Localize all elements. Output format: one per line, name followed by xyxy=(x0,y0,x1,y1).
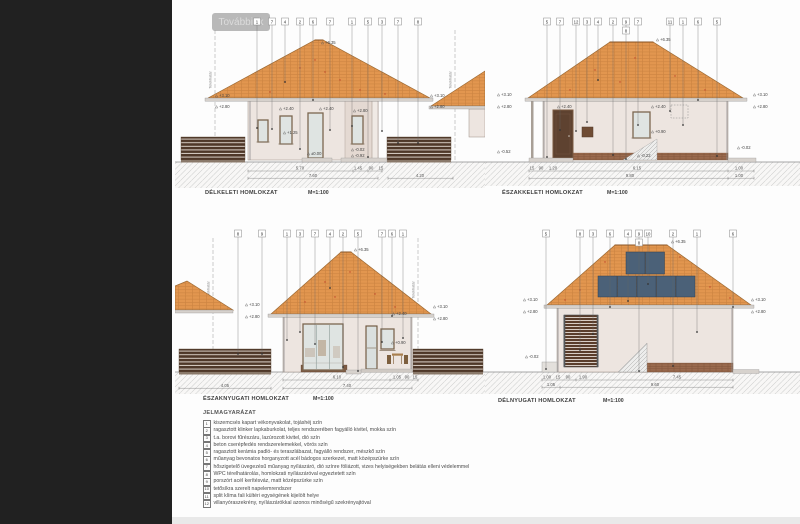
level-symbol xyxy=(497,106,500,108)
level-value: +1.25 xyxy=(287,130,298,135)
legend: JELMAGYARÁZAT 1kiszemcsés kapart vékonyv… xyxy=(203,410,543,508)
legend-item-text: porszórt acél kerítésváz, matt középszür… xyxy=(214,478,323,484)
drawing-scale: M=1:100 xyxy=(308,190,329,196)
dimension-value: 15 xyxy=(413,375,418,380)
level-value: +2.40 xyxy=(655,104,666,109)
level-symbol xyxy=(656,39,659,41)
level-value: +3.10 xyxy=(219,93,230,98)
legend-item: 3t.a. borovi fűrészáru, lazúrozott kivit… xyxy=(203,435,543,442)
ground xyxy=(485,372,800,394)
level-value: -0.02 xyxy=(741,145,751,150)
level-value: -0.02 xyxy=(355,147,365,152)
legend-item-text: műanyag bevonatos horganyzott acél bádog… xyxy=(214,456,400,462)
porch-column xyxy=(372,101,378,160)
level-symbol xyxy=(433,318,436,320)
fence-right xyxy=(413,349,483,375)
fence-left xyxy=(179,349,271,375)
level-value: +2.80 xyxy=(357,108,368,113)
meter-cabinet xyxy=(582,127,593,137)
level-symbol xyxy=(753,94,756,96)
roof xyxy=(268,252,434,317)
dimension-value: 1.05 xyxy=(393,375,402,380)
roof xyxy=(525,42,747,101)
level-value: +2.80 xyxy=(219,104,230,109)
legend-item: 1kiszemcsés kapart vékonyvakolat, tojásh… xyxy=(203,420,543,427)
fence-left xyxy=(181,137,245,163)
level-value: -0.22 xyxy=(641,153,651,158)
sidebar-panel xyxy=(0,0,172,524)
legend-item-text: t.a. borovi fűrészáru, lazúrozott kivite… xyxy=(214,435,320,441)
level-symbol xyxy=(245,316,248,318)
legend-item: 7hőszigetelő üvegezésű műanyag nyílászár… xyxy=(203,464,543,471)
legend-item: 2ragasztott klinker lapkaburkolat, telje… xyxy=(203,427,543,434)
dimension-value: 90 xyxy=(539,166,544,171)
dimension-value: 15 xyxy=(556,375,561,380)
neighbor-roof xyxy=(175,281,233,313)
terrace-door xyxy=(366,326,377,369)
dimension-value: 9.60 xyxy=(651,382,660,387)
walkway-slab xyxy=(733,370,759,374)
level-value: +6.35 xyxy=(358,247,369,252)
level-value: -0.02 xyxy=(529,354,539,359)
drawing-title: DÉLKELETI HOMLOKZAT xyxy=(205,188,278,196)
level-value: +2.80 xyxy=(434,104,445,109)
terrace-floor xyxy=(361,369,412,373)
dimension-value: 7.45 xyxy=(673,375,682,380)
legend-item-text: hőszigetelő üvegezésű műanyag nyílászáró… xyxy=(214,464,470,470)
level-value: +2.80 xyxy=(757,104,768,109)
level-value: +6.35 xyxy=(675,239,686,244)
level-value: +2.80 xyxy=(501,104,512,109)
level-symbol xyxy=(753,106,756,108)
terrace-slab xyxy=(529,158,573,162)
level-value: +2.40 xyxy=(283,106,294,111)
level-symbol xyxy=(525,356,528,358)
level-value: ±0.00 xyxy=(311,151,322,156)
dimension-value: 4.05 xyxy=(221,383,230,388)
svg-text:Telekhatár: Telekhatár xyxy=(209,71,213,89)
level-value: +2.40 xyxy=(396,311,407,316)
callout-number: 10 xyxy=(646,231,651,236)
level-value: +3.10 xyxy=(757,92,768,97)
dimension-value: 90 xyxy=(566,375,571,380)
dimension-value: 5.70 xyxy=(296,166,305,171)
level-symbol xyxy=(497,151,500,153)
level-symbol xyxy=(751,311,754,313)
dimension-value: 4.20 xyxy=(416,173,425,178)
legend-item-text: kiszemcsés kapart vékonyvakolat, tojáshé… xyxy=(214,420,323,426)
dimension-value: 15 xyxy=(530,166,535,171)
concrete-base xyxy=(542,362,557,372)
dimension-value: 9.80 xyxy=(626,173,635,178)
drawing-scale: M=1:100 xyxy=(607,190,628,196)
drawing-sheet: Továbbiak Telekhatár Telekhatár xyxy=(172,0,800,517)
level-value: +3.10 xyxy=(249,302,260,307)
dimension-value: 90 xyxy=(369,166,374,171)
level-symbol xyxy=(737,147,740,149)
level-value: +3.10 xyxy=(501,92,512,97)
level-value: +6.35 xyxy=(325,40,336,45)
legend-item-text: beton cserépfedés rendszerelemekkel, vör… xyxy=(214,442,328,448)
porch-post xyxy=(531,101,534,158)
sliding-glass-door xyxy=(303,324,343,370)
level-value: +2.80 xyxy=(527,309,538,314)
elevation-northeast: 15901.206.151.009.801.00 +6.35+3.10+2.80… xyxy=(485,10,800,210)
legend-items: 1kiszemcsés kapart vékonyvakolat, tojásh… xyxy=(203,420,543,508)
legend-item: 12villanyóraszekrény, nyílászárókkal azo… xyxy=(203,500,543,507)
elevation-northwest: Telekhatár Telekhatár xyxy=(175,222,485,412)
dimension-value: 1.00 xyxy=(735,173,744,178)
entry-door xyxy=(553,110,573,158)
dimension-value: 6.10 xyxy=(333,375,342,380)
walkway-slab xyxy=(728,158,756,162)
dimension-value: 1.05 xyxy=(547,382,556,387)
level-value: +6.35 xyxy=(660,37,671,42)
level-value: +2.40 xyxy=(561,104,572,109)
level-symbol xyxy=(245,304,248,306)
window xyxy=(258,120,268,142)
dimension-value: 1.45 xyxy=(354,166,363,171)
level-symbol xyxy=(497,94,500,96)
level-value: +0.90 xyxy=(395,340,406,345)
drawing-title: ÉSZAKKELETI HOMLOKZAT xyxy=(502,188,583,196)
level-symbol xyxy=(523,311,526,313)
level-symbol xyxy=(433,306,436,308)
legend-item: 6műanyag bevonatos horganyzott acél bádo… xyxy=(203,456,543,463)
dimension-value: 7.40 xyxy=(343,383,352,388)
svg-text:Telekhatár: Telekhatár xyxy=(449,71,453,89)
level-symbol xyxy=(354,249,357,251)
svg-text:Telekhatár: Telekhatár xyxy=(412,281,416,299)
dimension-value: 7.60 xyxy=(309,173,318,178)
legend-item: 5ragasztott kerámia padló- és teraszlába… xyxy=(203,449,543,456)
legend-item: 9porszórt acél kerítésváz, matt középszü… xyxy=(203,478,543,485)
dimension-value: 1.90 xyxy=(579,375,588,380)
level-value: +3.10 xyxy=(434,93,445,98)
level-symbol xyxy=(671,241,674,243)
level-value: +3.10 xyxy=(755,297,766,302)
legend-item: 10tetősíkra szerelt napelemrendszer xyxy=(203,486,543,493)
legend-item: 8WPC térelhatárolás, homlokzati nyílászá… xyxy=(203,471,543,478)
level-value: +2.80 xyxy=(437,316,448,321)
elevation-southeast: Telekhatár Telekhatár xyxy=(175,10,485,210)
door-handle xyxy=(568,135,570,137)
dimension-value: 6.15 xyxy=(633,166,642,171)
level-value: -0.92 xyxy=(355,153,365,158)
level-symbol xyxy=(430,95,433,97)
dimension-value: 1.20 xyxy=(549,166,558,171)
legend-item-text: villanyóraszekrény, nyílászárókkal azono… xyxy=(214,500,371,506)
drawing-title: ÉSZAKNYUGATI HOMLOKZAT xyxy=(203,394,289,402)
legend-item-text: WPC térelhatárolás, homlokzati nyílászár… xyxy=(214,471,356,477)
window xyxy=(632,112,652,138)
entry-step xyxy=(302,158,332,162)
level-value: -0.52 xyxy=(501,149,511,154)
dimension-value: 1.00 xyxy=(735,166,744,171)
legend-item-text: tetősíkra szerelt napelemrendszer xyxy=(214,486,292,492)
level-value: +3.10 xyxy=(527,297,538,302)
dimension-value: 15 xyxy=(379,166,384,171)
level-symbol xyxy=(215,106,218,108)
legend-title: JELMAGYARÁZAT xyxy=(203,410,543,416)
wpc-screen xyxy=(564,315,599,367)
legend-item: 4beton cserépfedés rendszerelemekkel, vö… xyxy=(203,442,543,449)
level-symbol xyxy=(751,299,754,301)
drawing-scale: M=1:100 xyxy=(313,396,334,402)
elevation-southwest: 1.0015901.907.451.059.60 +6.35+3.10+2.80… xyxy=(485,222,800,412)
legend-item-text: ragasztott klinker lapkaburkolat, teljes… xyxy=(214,427,397,433)
drawing-scale: M=1:100 xyxy=(603,398,624,404)
legend-item-number: 12 xyxy=(203,500,211,508)
klinker-plinth xyxy=(643,363,733,372)
page-bottom-gap xyxy=(172,517,800,524)
drawing-title: DÉLNYUGATI HOMLOKZAT xyxy=(498,396,576,404)
level-value: +3.10 xyxy=(437,304,448,309)
window xyxy=(352,116,363,144)
roof xyxy=(205,40,433,101)
ground xyxy=(175,162,485,188)
legend-item-text: ragasztott kerámia padló- és teraszlábaz… xyxy=(214,449,386,455)
level-symbol xyxy=(523,299,526,301)
legend-item-text: split klíma fali kültéri egységének kije… xyxy=(214,493,320,499)
terrace-slab xyxy=(341,158,387,162)
level-value: +2.40 xyxy=(323,106,334,111)
level-value: +2.80 xyxy=(755,309,766,314)
callout-number: 11 xyxy=(668,19,673,24)
level-value: +0.90 xyxy=(655,129,666,134)
fence-right xyxy=(387,137,451,163)
dimension-value: 1.00 xyxy=(543,375,552,380)
dimension-value: 90 xyxy=(405,375,410,380)
legend-item: 11split klíma fali kültéri egységének ki… xyxy=(203,493,543,500)
level-value: +2.80 xyxy=(249,314,260,319)
callout-number: 12 xyxy=(574,19,579,24)
